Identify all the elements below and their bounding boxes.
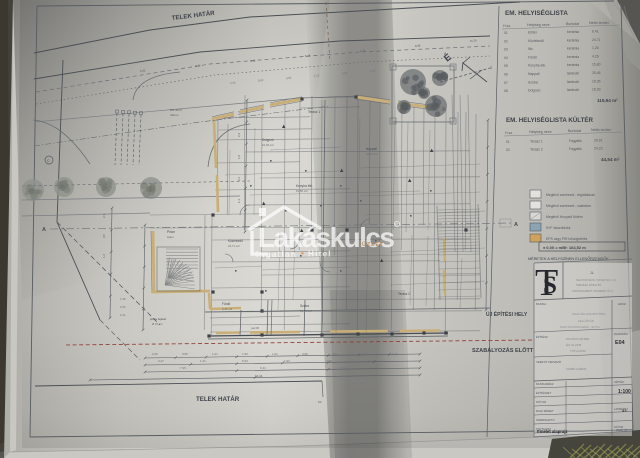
svg-text:•: •: [301, 249, 304, 258]
svg-text:16,93 m2: 16,93 m2: [262, 143, 274, 147]
svg-text:EM. HELYISÉGLISTA: EM. HELYISÉGLISTA: [505, 8, 568, 17]
svg-text:Helyiség neve: Helyiség neve: [529, 130, 552, 134]
svg-text:R: R: [395, 222, 398, 227]
svg-text:kerámia: kerámia: [567, 63, 579, 67]
svg-text:Nettó terület: Nettó terület: [589, 21, 609, 25]
svg-text:SZABÁLYOZÁS ELŐTT: SZABÁLYOZÁS ELŐTT: [472, 347, 534, 354]
svg-text:19,35: 19,35: [592, 79, 601, 83]
svg-text:kerámia: kerámia: [567, 38, 579, 42]
svg-text:1,2: 1,2: [102, 254, 106, 258]
svg-text:5,60: 5,60: [342, 71, 348, 76]
svg-text:kerámia: kerámia: [567, 55, 579, 59]
svg-text:3,65: 3,65: [286, 76, 292, 81]
svg-text:Fürdő: Fürdő: [222, 302, 231, 306]
svg-text:TÓTH ANNA: TÓTH ANNA: [570, 348, 586, 353]
svg-text:Lakáskulcs: Lakáskulcs: [258, 222, 395, 253]
svg-text:SZABÓ GÁBOR: SZABÓ GÁBOR: [566, 366, 586, 371]
svg-text:1,41: 1,41: [200, 359, 206, 363]
svg-text:03: 03: [504, 48, 508, 52]
svg-text:10: 10: [318, 400, 322, 404]
svg-text:RAJZSZÁM:: RAJZSZÁM:: [614, 332, 629, 336]
svg-text:2,25: 2,25: [360, 48, 366, 53]
svg-text:Nappali: Nappali: [366, 147, 377, 151]
svg-text:3,48: 3,48: [250, 58, 256, 63]
svg-text:Ø 15 cm: Ø 15 cm: [152, 322, 163, 326]
svg-text:05: 05: [504, 64, 508, 68]
svg-text:4,26 m2: 4,26 m2: [222, 307, 233, 311]
svg-text:Fagyálló: Fagyálló: [569, 139, 582, 143]
svg-text:Dolgozó: Dolgozó: [528, 89, 541, 93]
svg-text:08: 08: [504, 89, 508, 93]
svg-text:07: 07: [504, 81, 508, 85]
svg-text:1,4: 1,4: [237, 199, 241, 203]
svg-text:Burkolat: Burkolat: [566, 22, 579, 26]
svg-text:Hitel: Hitel: [308, 250, 332, 259]
svg-text:4,26: 4,26: [592, 54, 599, 58]
svg-text:1,2: 1,2: [237, 111, 241, 115]
svg-text:6,21: 6,21: [260, 366, 266, 370]
svg-text:115,94 m²: 115,94 m²: [597, 98, 618, 103]
svg-text:4,26: 4,26: [368, 359, 374, 363]
svg-text:NAGYKOVÁCSI, KOSSUTH U. 12.: NAGYKOVÁCSI, KOSSUTH U. 12.: [576, 278, 617, 282]
svg-text:pad 98: pad 98: [251, 326, 259, 330]
svg-text:laminált: laminált: [567, 80, 579, 84]
svg-text:1,93: 1,93: [284, 359, 290, 363]
svg-text:44,54 m²: 44,54 m²: [601, 157, 620, 162]
svg-text:Fagyálló: Fagyálló: [569, 147, 582, 151]
svg-text:TELEK HATÁR: TELEK HATÁR: [196, 396, 240, 403]
svg-text:2,90: 2,90: [370, 68, 376, 73]
svg-text:RAJZ MÉRET: RAJZ MÉRET: [536, 408, 554, 413]
svg-text:S: S: [543, 272, 557, 299]
svg-text:3,5: 3,5: [102, 234, 106, 238]
svg-text:01: 01: [504, 31, 508, 35]
svg-text:Emelet alaprajz: Emelet alaprajz: [537, 429, 568, 434]
svg-text:FELÚJÍTÁS: FELÚJÍTÁS: [578, 318, 594, 323]
svg-text:1:100: 1:100: [618, 389, 631, 395]
svg-text:6,41: 6,41: [592, 30, 599, 34]
svg-text:MUNKARÉSZ: MUNKARÉSZ: [536, 381, 554, 386]
svg-text:Fürdő: Fürdő: [528, 55, 537, 59]
svg-text:Előtér: Előtér: [528, 31, 538, 35]
svg-text:4,26: 4,26: [362, 352, 368, 356]
svg-text:0,54: 0,54: [332, 352, 338, 356]
svg-text:1,8: 1,8: [237, 155, 241, 159]
svg-text:födém: födém: [170, 113, 179, 117]
svg-text:1,01: 1,01: [272, 352, 278, 356]
svg-text:2,2: 2,2: [237, 177, 241, 181]
svg-text:A3: A3: [622, 409, 627, 413]
svg-text:KOVÁCS PÉTER: KOVÁCS PÉTER: [566, 336, 590, 341]
svg-text:Dolgozó: Dolgozó: [262, 138, 274, 142]
svg-text:Meglévő szerkezet - téglafalaz: Meglévő szerkezet - téglafalazat: [546, 193, 595, 197]
svg-text:1,01: 1,01: [212, 352, 218, 356]
svg-text:Ingatlan: Ingatlan: [256, 250, 297, 259]
svg-text:Terasz 1: Terasz 1: [308, 110, 320, 114]
svg-text:HRSZ:: HRSZ:: [618, 302, 627, 306]
svg-text:2,26: 2,26: [326, 359, 332, 363]
svg-text:CSALÁDI HÁZ BŐVÍTÉS: CSALÁDI HÁZ BŐVÍTÉS: [572, 311, 606, 316]
svg-text:04: 04: [504, 56, 508, 60]
svg-text:0,90: 0,90: [258, 78, 264, 83]
svg-text:5,00: 5,00: [242, 359, 248, 363]
svg-text:ÉPÍTÉSZ: ÉPÍTÉSZ: [536, 334, 548, 339]
svg-text:20,91: 20,91: [594, 139, 603, 143]
svg-text:16,93: 16,93: [592, 88, 601, 92]
svg-text:EM. HELYISÉGLISTA KÜLTÉR: EM. HELYISÉGLISTA KÜLTÉR: [506, 116, 594, 124]
svg-text:3,14: 3,14: [340, 366, 346, 370]
svg-text:1,01: 1,01: [120, 313, 126, 317]
svg-text:JL.: JL.: [590, 271, 595, 275]
svg-text:Meglévő Hunyadi födém: Meglévő Hunyadi födém: [546, 215, 583, 219]
svg-text:A: A: [42, 227, 46, 233]
svg-text:pince lejárat: pince lejárat: [150, 317, 166, 321]
svg-text:25,46: 25,46: [592, 71, 601, 75]
svg-text:± 0,00 = mBf: 164,52 m: ± 0,00 = mBf: 164,52 m: [543, 245, 586, 250]
svg-text:1,50: 1,50: [242, 352, 248, 356]
svg-text:1,70: 1,70: [392, 352, 398, 356]
svg-text:Közlekedő: Közlekedő: [528, 39, 544, 43]
svg-text:01: 01: [506, 140, 510, 144]
svg-text:H.sz.: H.sz.: [503, 24, 511, 28]
svg-text:02: 02: [506, 148, 510, 152]
svg-text:lejáró: lejáró: [167, 235, 174, 239]
svg-text:N+F falazóblokk: N+F falazóblokk: [546, 226, 571, 230]
svg-text:Terasz 2: Terasz 2: [398, 292, 410, 296]
svg-text:9,48: 9,48: [195, 63, 201, 68]
svg-text:Konyha étk.: Konyha étk.: [296, 184, 313, 188]
svg-text:Közlekedő: Közlekedő: [228, 239, 243, 243]
svg-text:1,25: 1,25: [314, 73, 320, 78]
svg-text:15,80 m2: 15,80 m2: [296, 189, 308, 193]
svg-text:19,35 m2: 19,35 m2: [300, 309, 312, 313]
svg-text:É/1 01-2345: É/1 01-2345: [566, 342, 582, 347]
svg-text:2,06: 2,06: [152, 352, 158, 356]
svg-text:Terasz 1: Terasz 1: [530, 140, 543, 144]
svg-text:Burkolat: Burkolat: [568, 129, 581, 133]
svg-text:Nettó terület: Nettó terület: [591, 128, 611, 132]
svg-text:ÜZLET: ÜZLET: [362, 241, 384, 248]
svg-text:1,26: 1,26: [592, 46, 599, 50]
svg-text:NAGYKOVÁCSI HRSZ.: 4477/2: NAGYKOVÁCSI HRSZ.: 4477/2: [560, 325, 600, 329]
svg-text:RB 30/37: RB 30/37: [170, 108, 183, 112]
svg-text:EPS vagy PIR hőszigetelés: EPS vagy PIR hőszigetelés: [546, 237, 588, 241]
svg-text:Pince: Pince: [167, 230, 175, 234]
svg-text:ÉPÍTÉSZET: ÉPÍTÉSZET: [536, 390, 552, 395]
svg-text:Szoba: Szoba: [300, 304, 309, 308]
svg-text:3,47: 3,47: [158, 359, 164, 363]
svg-text:16,41: 16,41: [255, 374, 263, 378]
svg-text:Konyha-étk.: Konyha-étk.: [528, 64, 546, 68]
svg-text:3,50: 3,50: [302, 352, 308, 356]
svg-text:15,80: 15,80: [592, 63, 601, 67]
svg-text:1,38: 1,38: [120, 297, 126, 301]
svg-text:H.sz.: H.sz.: [505, 131, 513, 135]
svg-text:Terasz 2: Terasz 2: [530, 148, 543, 152]
svg-text:6,48: 6,48: [305, 53, 311, 58]
svg-text:2,4: 2,4: [237, 133, 241, 137]
svg-text:24,71: 24,71: [592, 38, 601, 42]
svg-text:2020. 07.: 2020. 07.: [616, 428, 629, 432]
svg-text:5,65: 5,65: [140, 68, 146, 73]
svg-text:SZERKESZTŐ: SZERKESZTŐ: [536, 417, 555, 422]
svg-text:15,35: 15,35: [470, 38, 478, 43]
svg-text:2,06: 2,06: [120, 305, 126, 309]
svg-text:kerámia: kerámia: [567, 30, 579, 34]
svg-text:7,35: 7,35: [180, 366, 186, 370]
svg-text:kerámia: kerámia: [567, 47, 579, 51]
svg-text:24,71 m2: 24,71 m2: [228, 244, 240, 248]
svg-text:3,50: 3,50: [182, 352, 188, 356]
svg-text:ÚJ ÉPÍTÉSI HELY: ÚJ ÉPÍTÉSI HELY: [486, 310, 528, 318]
svg-text:Nappali: Nappali: [528, 72, 540, 76]
svg-text:laminált: laminált: [567, 72, 579, 76]
svg-text:Szoba: Szoba: [528, 80, 538, 84]
svg-text:2,40: 2,40: [230, 80, 236, 85]
svg-text:02: 02: [504, 39, 508, 43]
svg-text:VEZETŐ TERVEZŐ: VEZETŐ TERVEZŐ: [536, 359, 562, 364]
svg-text:Wc: Wc: [528, 47, 533, 51]
svg-text:25,46 m2: 25,46 m2: [366, 152, 378, 156]
svg-text:laminált: laminált: [567, 88, 579, 92]
svg-text:MUNKA: MUNKA: [536, 302, 546, 306]
svg-text:E04: E04: [615, 340, 625, 346]
svg-text:Meglévő szerkezet - vasbeton: Meglévő szerkezet - vasbeton: [546, 204, 591, 208]
svg-text:06: 06: [504, 73, 508, 77]
svg-text:DÁTUM: DÁTUM: [536, 400, 547, 404]
svg-text:A: A: [514, 222, 518, 228]
svg-text:9,98: 9,98: [415, 43, 421, 48]
svg-text:2,1: 2,1: [102, 214, 106, 218]
svg-text:Helyiség neve: Helyiség neve: [527, 23, 550, 27]
svg-text:24,23: 24,23: [594, 147, 603, 151]
